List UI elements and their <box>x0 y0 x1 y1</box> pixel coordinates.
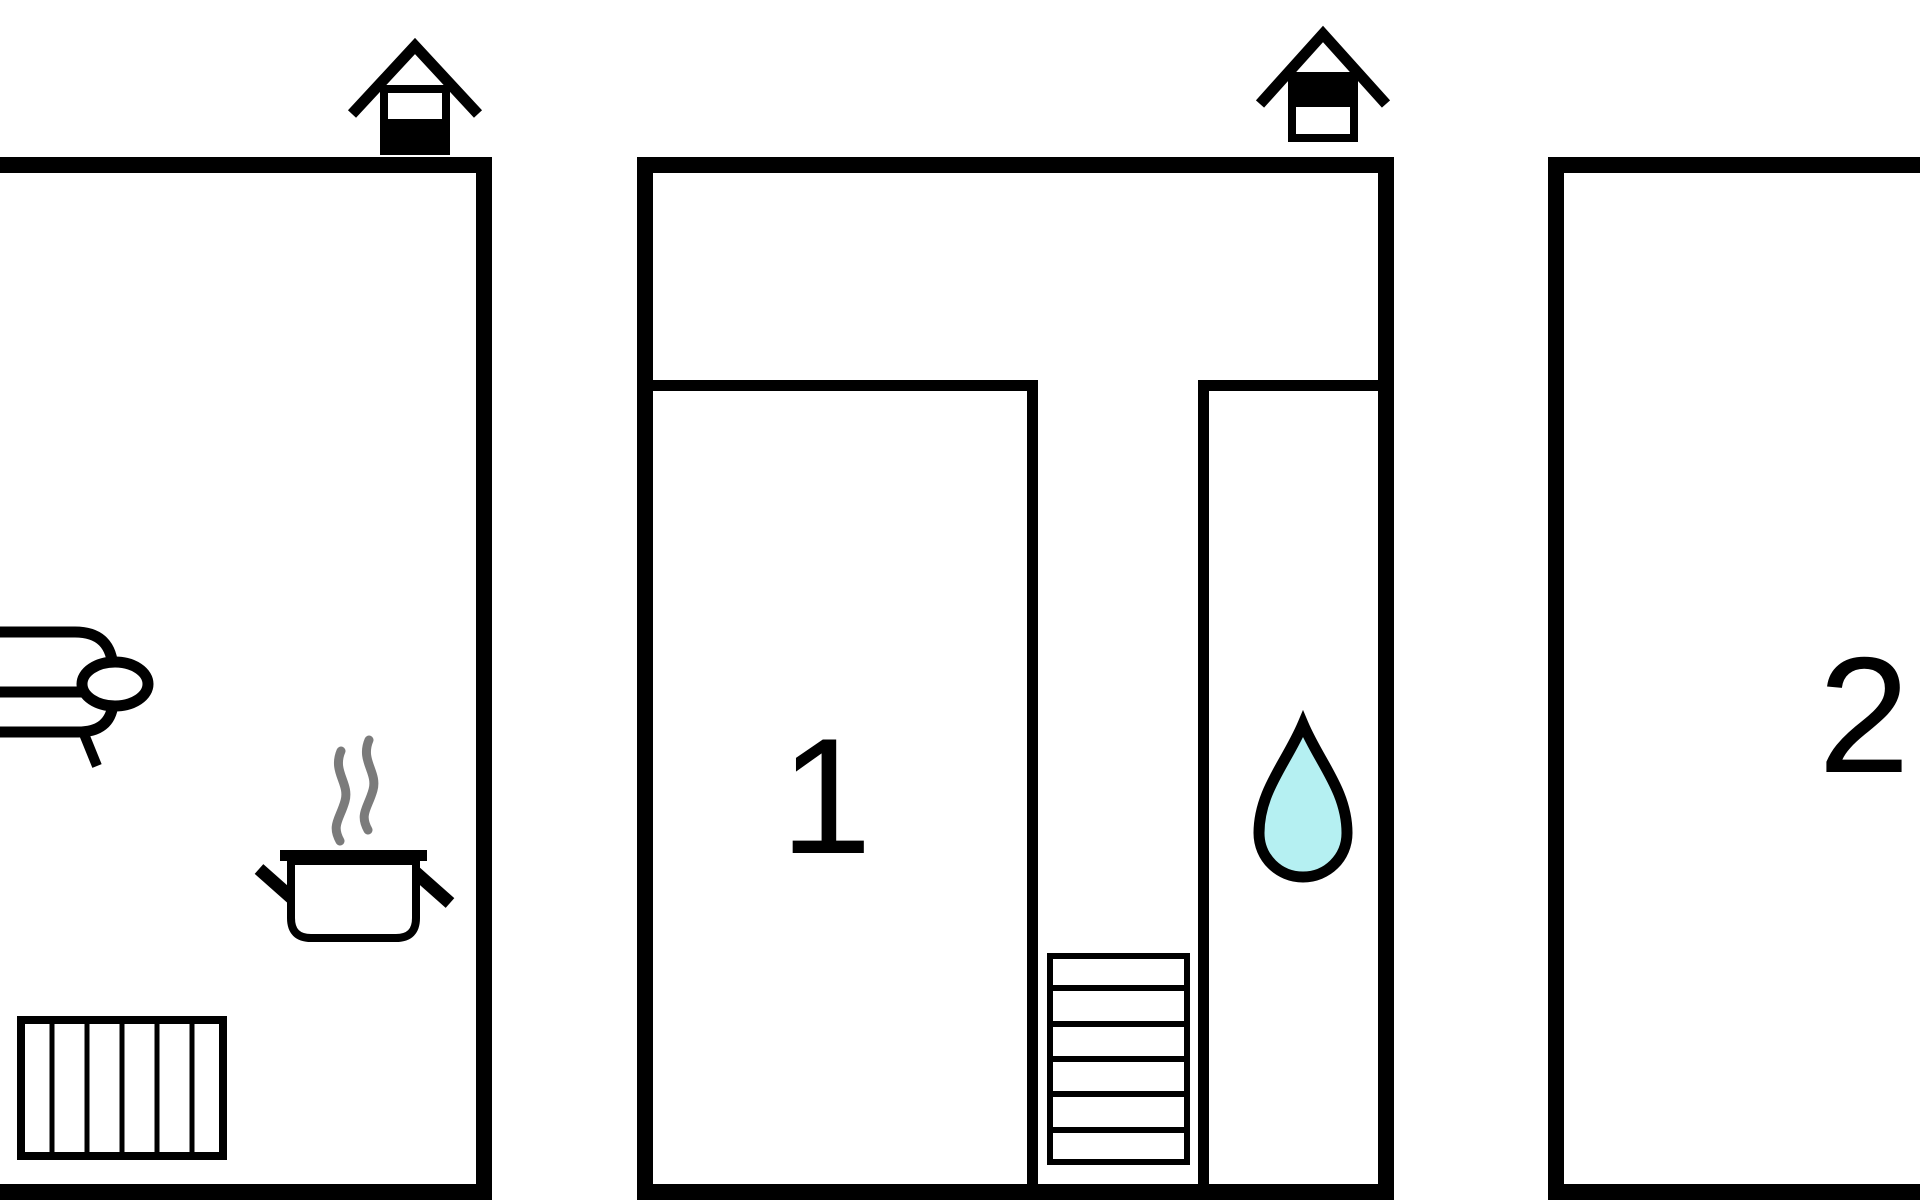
steam-icon <box>336 740 374 841</box>
middle-unit: 1 <box>637 157 1394 1200</box>
room-1-label: 1 <box>780 704 872 888</box>
sofa-armrest-cushion <box>82 662 148 706</box>
pot-rim <box>280 850 427 861</box>
pot-handle-right <box>415 872 450 903</box>
floor-plan: 1 2 <box>0 0 1920 1200</box>
pot-body <box>291 861 416 938</box>
right-unit-wall-top <box>1548 157 1920 173</box>
floor-plan-canvas: 1 2 <box>0 0 1920 1200</box>
right-unit: 2 <box>1548 157 1920 1200</box>
steam-wave-left <box>336 751 346 841</box>
partition-wall-bath-left <box>1198 380 1209 1184</box>
sofa-leg <box>84 734 97 766</box>
room-2-label: 2 <box>1818 623 1910 807</box>
middle-unit-wall-left <box>637 157 653 1200</box>
house-level-icon <box>352 46 478 155</box>
middle-unit-wall-bottom <box>637 1184 1394 1200</box>
stairs-icon <box>1047 956 1190 1162</box>
sofa-front <box>0 704 113 732</box>
right-unit-wall-left <box>1548 157 1564 1200</box>
house-filled-half <box>380 119 450 155</box>
left-unit-wall-bottom <box>0 1184 492 1200</box>
partition-wall-room1-top <box>653 380 1038 391</box>
left-unit-wall-top <box>0 157 492 173</box>
cooking-pot-icon <box>259 850 450 938</box>
house-filled-half <box>1288 72 1358 107</box>
right-unit-wall-bottom <box>1548 1184 1920 1200</box>
sofa-icon <box>0 632 148 766</box>
middle-unit-wall-right <box>1378 157 1394 1200</box>
steam-wave-right <box>364 740 374 830</box>
partition-wall-room1-right <box>1027 380 1038 1184</box>
water-drop-icon <box>1259 724 1347 877</box>
middle-unit-wall-top <box>637 157 1394 173</box>
radiator-icon <box>21 1020 223 1156</box>
left-unit-wall-right <box>476 157 492 1200</box>
left-unit <box>0 157 492 1200</box>
house-level-icon <box>1260 34 1386 138</box>
partition-wall-bath-top <box>1198 380 1378 391</box>
